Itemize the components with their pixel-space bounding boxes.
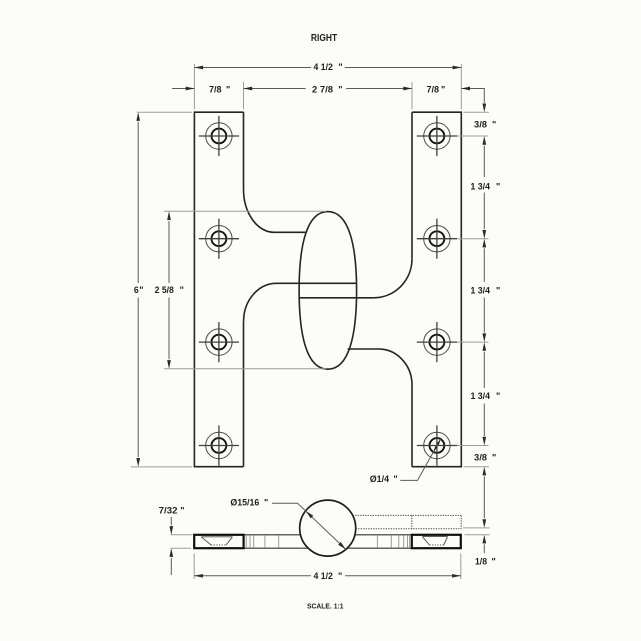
- svg-text:7/8: 7/8: [209, 85, 222, 95]
- svg-text:": ": [180, 506, 184, 516]
- svg-text:": ": [226, 85, 230, 95]
- svg-text:": ": [492, 557, 496, 567]
- svg-text:": ": [264, 497, 268, 507]
- svg-text:SCALE. 1:1: SCALE. 1:1: [307, 602, 344, 611]
- svg-text:": ": [492, 119, 496, 129]
- svg-text:4 1/2: 4 1/2: [314, 62, 333, 72]
- svg-text:Ø1/4: Ø1/4: [370, 474, 389, 484]
- svg-text:": ": [496, 391, 500, 401]
- svg-text:2 5/8: 2 5/8: [155, 285, 174, 295]
- svg-text:": ": [139, 285, 143, 295]
- svg-text:2 7/8: 2 7/8: [312, 85, 333, 95]
- svg-text:1 3/4: 1 3/4: [471, 286, 491, 296]
- svg-text:1/8: 1/8: [475, 557, 487, 567]
- svg-text:": ": [393, 474, 397, 484]
- svg-text:": ": [496, 182, 500, 192]
- svg-text:RIGHT: RIGHT: [311, 33, 337, 44]
- svg-text:": ": [338, 62, 342, 72]
- svg-text:": ": [441, 85, 445, 95]
- svg-text:": ": [338, 85, 342, 95]
- svg-text:7/32: 7/32: [159, 506, 178, 516]
- svg-text:7/8: 7/8: [427, 85, 440, 95]
- svg-text:Ø15/16: Ø15/16: [230, 497, 259, 507]
- svg-text:6: 6: [134, 285, 139, 295]
- svg-text:": ": [492, 452, 496, 462]
- svg-text:3/8: 3/8: [474, 452, 487, 462]
- svg-text:": ": [496, 286, 500, 296]
- svg-text:1 3/4: 1 3/4: [471, 182, 491, 192]
- svg-text:": ": [180, 285, 184, 295]
- svg-text:4 1/2: 4 1/2: [314, 571, 333, 581]
- svg-text:": ": [338, 571, 342, 581]
- svg-text:1 3/4: 1 3/4: [471, 391, 491, 401]
- svg-text:3/8: 3/8: [474, 119, 487, 129]
